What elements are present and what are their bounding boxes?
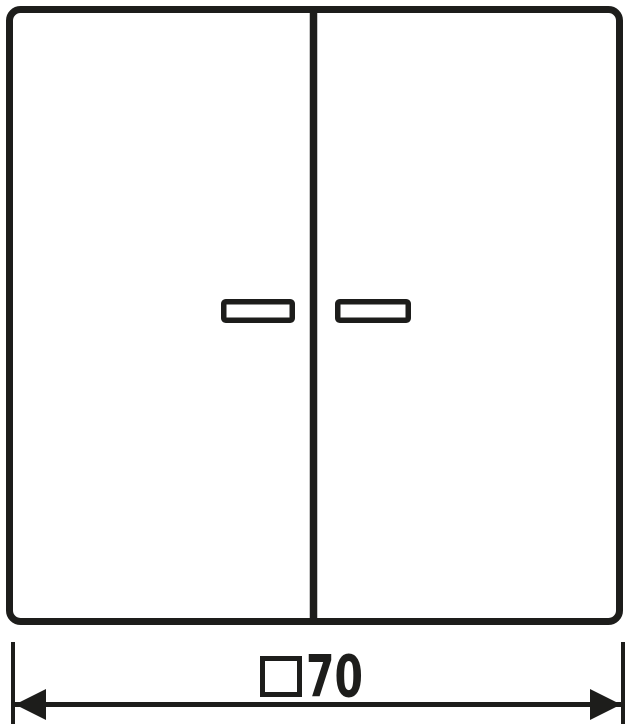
technical-drawing-canvas: 70 [0,0,631,724]
right-indicator-window [338,302,409,321]
square-symbol-icon [263,659,300,695]
dimension-value: 70 [306,643,363,711]
faceplate-dimension-drawing: 70 [0,0,631,724]
left-indicator-window [224,302,293,321]
dimension-arrow-right-icon [590,689,621,720]
dimension-arrow-left-icon [15,689,46,720]
